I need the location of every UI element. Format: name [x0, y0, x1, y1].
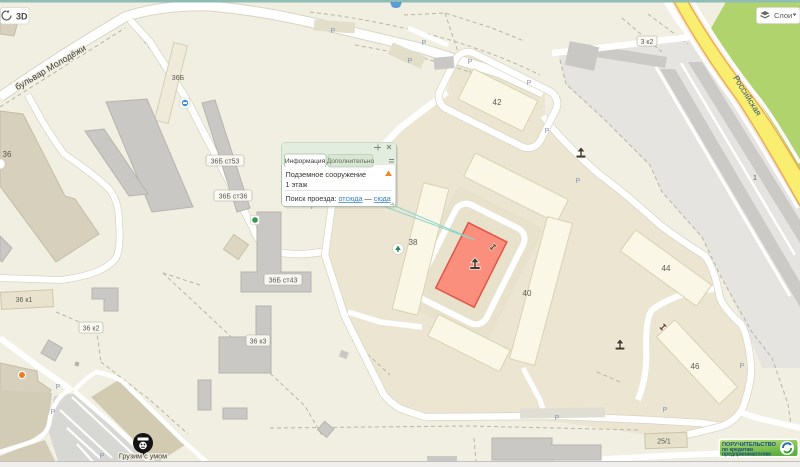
svg-text:Р: Р [468, 59, 473, 66]
svg-text:46: 46 [691, 362, 700, 371]
svg-text:Р: Р [331, 28, 336, 35]
svg-text:40: 40 [523, 289, 532, 298]
svg-text:Р: Р [555, 415, 560, 422]
svg-text:36 к2: 36 к2 [83, 326, 100, 333]
svg-text:3D: 3D [16, 12, 28, 22]
svg-text:Р: Р [576, 178, 581, 185]
svg-text:3 к2: 3 к2 [641, 39, 654, 46]
svg-text:предпринимателям: предпринимателям [722, 451, 771, 457]
svg-text:1: 1 [753, 175, 757, 182]
svg-text:44: 44 [662, 264, 671, 273]
svg-text:Р: Р [527, 80, 532, 87]
svg-text:36Б ст36: 36Б ст36 [219, 194, 248, 201]
svg-text:36Б: 36Б [172, 75, 185, 82]
svg-text:Р: Р [51, 409, 56, 416]
svg-text:36 к3: 36 к3 [250, 339, 267, 346]
svg-text:Р: Р [545, 128, 550, 135]
svg-text:Дополнительно: Дополнительно [327, 158, 375, 165]
svg-text:Грузим с умом: Грузим с умом [119, 452, 167, 461]
svg-text:36Б ст43: 36Б ст43 [269, 278, 298, 285]
svg-text:38: 38 [409, 238, 418, 247]
svg-text:Р: Р [663, 407, 668, 414]
svg-text:Р: Р [422, 40, 427, 47]
svg-text:36 к1: 36 к1 [16, 297, 33, 304]
svg-text:Поиск проезда: отсюда — сюда: Поиск проезда: отсюда — сюда [286, 194, 391, 203]
svg-text:Подземное сооружение: Подземное сооружение [286, 170, 367, 179]
svg-text:Р: Р [100, 453, 105, 460]
svg-text:Слои: Слои [774, 11, 792, 20]
svg-text:Р: Р [408, 58, 413, 65]
svg-text:36Б ст53: 36Б ст53 [211, 159, 240, 166]
svg-text:Р: Р [56, 384, 61, 391]
svg-text:25/1: 25/1 [657, 439, 671, 446]
svg-text:Информация: Информация [285, 158, 326, 165]
svg-text:42: 42 [493, 98, 502, 107]
svg-text:36: 36 [3, 150, 12, 159]
svg-text:Р: Р [740, 363, 745, 370]
svg-text:1 этаж: 1 этаж [286, 180, 308, 189]
